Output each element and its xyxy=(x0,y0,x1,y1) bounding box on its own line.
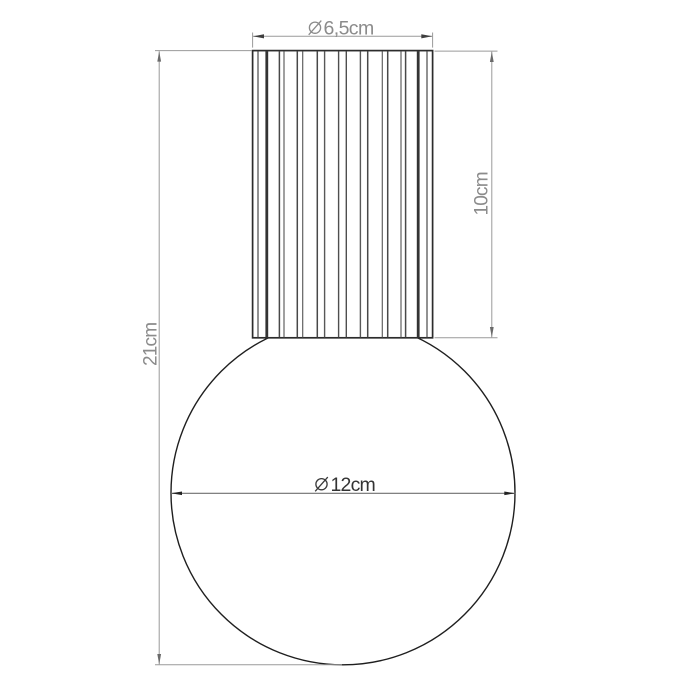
svg-text:10cm: 10cm xyxy=(472,172,493,215)
svg-text:12cm: 12cm xyxy=(331,474,375,496)
svg-text:6,5cm: 6,5cm xyxy=(324,17,374,39)
svg-text:21cm: 21cm xyxy=(141,323,162,366)
